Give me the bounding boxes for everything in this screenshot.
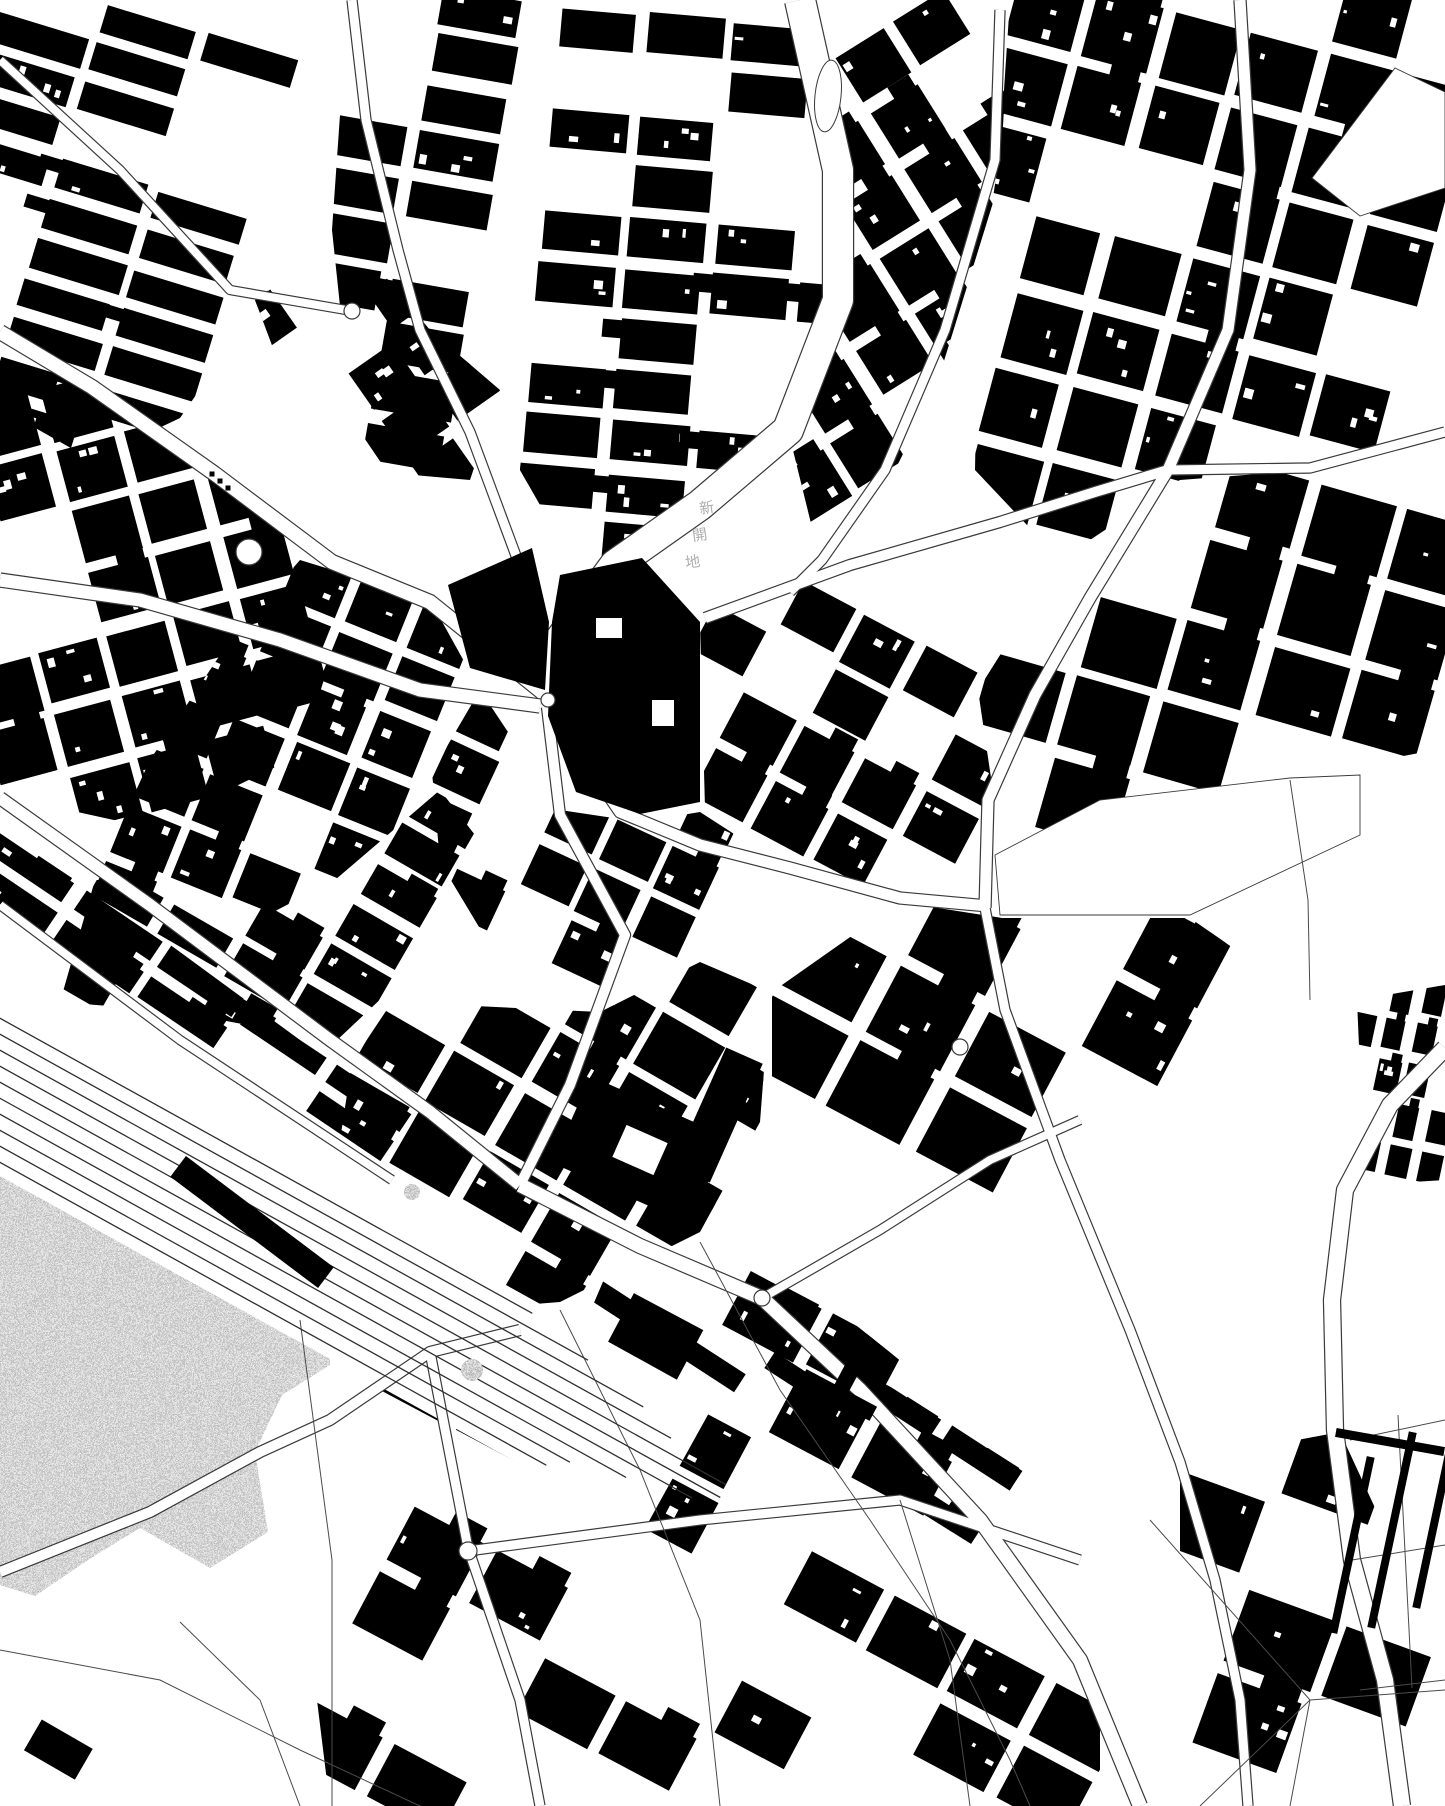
dot-3 [226,486,231,491]
field-bar-top [1335,1428,1445,1456]
canal-label-char-3: 地 [684,552,701,572]
central-mass [548,558,700,814]
district-southwest-few [24,1719,93,1779]
field-bar-2 [1367,1431,1416,1628]
road-south-cross-2 [468,1500,1080,1560]
roundabout-5 [952,1039,968,1055]
dot-2 [218,479,223,484]
roundabout-0 [541,693,555,707]
canal-label-char-2: 開 [691,525,708,545]
roundabout-2 [344,303,360,319]
stippled-tree-0 [461,1359,483,1381]
roundabout-1 [236,539,262,565]
roundabout-4 [754,1290,770,1306]
minor-street-9 [180,1622,300,1806]
canal-label-char-1: 新 [698,498,715,518]
city-figure-ground-map: 新 開 地 [0,0,1445,1806]
central-mass-west [448,548,549,690]
dot-1 [210,472,215,477]
stippled-tree-1 [404,1184,420,1200]
roundabout-3 [459,1542,477,1560]
map-canvas: 新 開 地 [0,0,1445,1806]
district-nw-strips [0,0,298,482]
